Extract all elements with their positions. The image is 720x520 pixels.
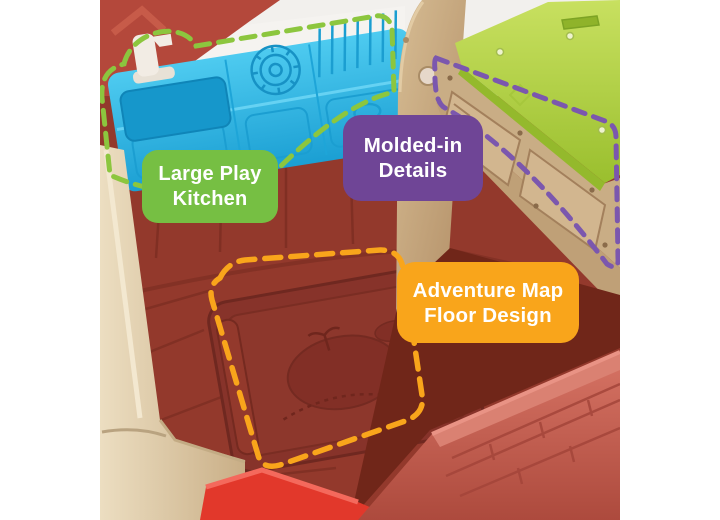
callout-text-line: Kitchen: [173, 187, 248, 211]
callout-text-line: Molded-in: [364, 133, 463, 158]
playhouse-photo: Large Play Kitchen Molded-in Details Adv…: [100, 0, 620, 520]
callout-adventure-map-floor: Adventure Map Floor Design: [397, 262, 579, 343]
callout-text-line: Floor Design: [424, 303, 552, 328]
playhouse-illustration: [100, 0, 620, 520]
callout-molded-in-details: Molded-in Details: [343, 115, 483, 201]
callout-large-play-kitchen: Large Play Kitchen: [142, 150, 278, 223]
callout-text-line: Details: [379, 158, 448, 183]
product-feature-image: Large Play Kitchen Molded-in Details Adv…: [0, 0, 720, 520]
callout-text-line: Adventure Map: [413, 278, 564, 303]
callout-text-line: Large Play: [158, 162, 261, 186]
